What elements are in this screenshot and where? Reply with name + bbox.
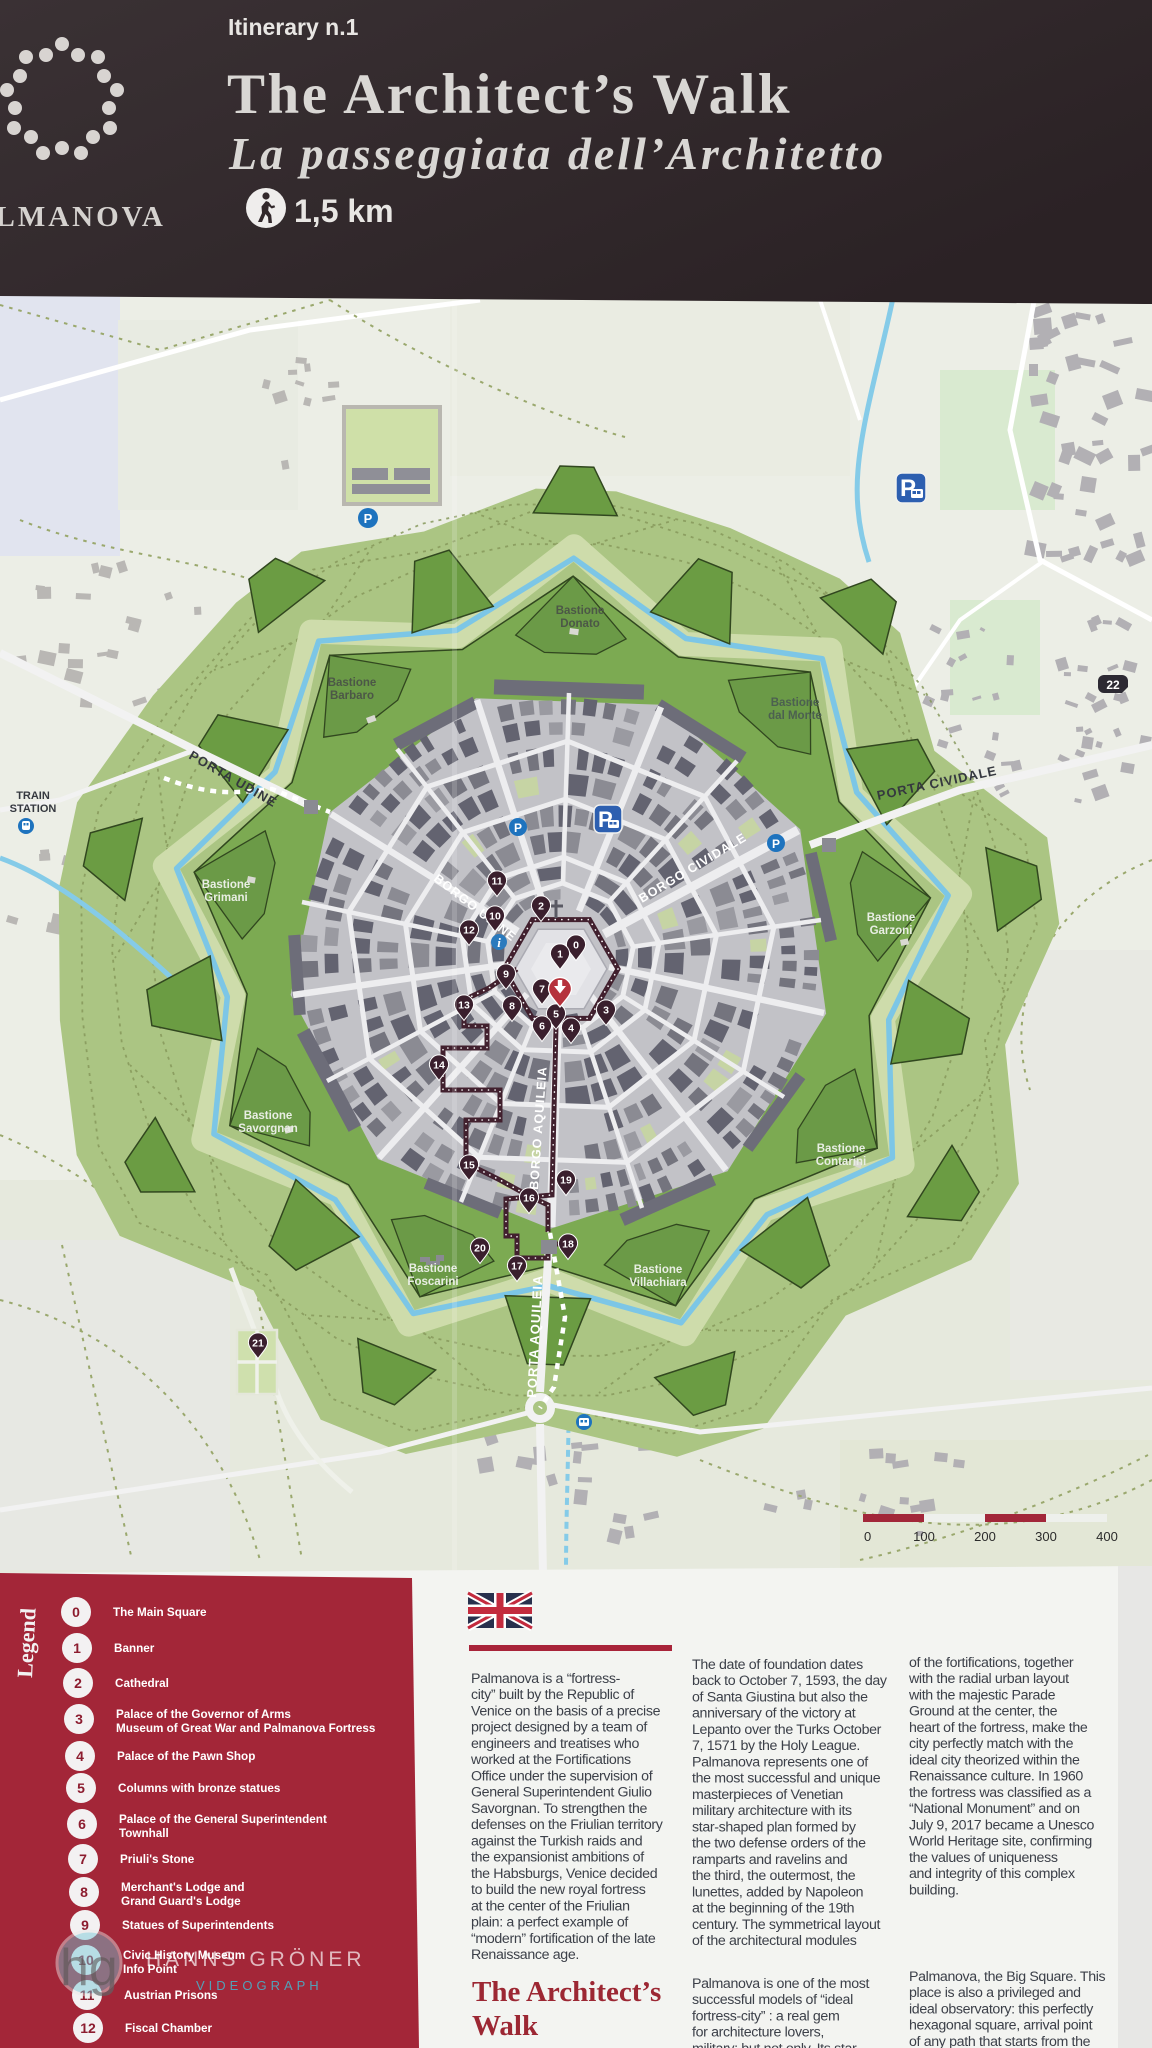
svg-text:4: 4: [76, 1748, 84, 1764]
svg-text:0: 0: [573, 940, 579, 952]
svg-text:9: 9: [503, 969, 509, 981]
svg-text:The Main Square: The Main Square: [113, 1606, 207, 1619]
svg-text:Townhall: Townhall: [119, 1827, 169, 1840]
svg-text:200: 200: [974, 1529, 996, 1544]
svg-text:Foscarini: Foscarini: [407, 1276, 458, 1288]
svg-text:successful models of “ideal: successful models of “ideal: [692, 1992, 853, 2008]
svg-text:P: P: [364, 511, 373, 526]
svg-text:Bastione: Bastione: [771, 697, 820, 709]
svg-text:“National Monument” and on: “National Monument” and on: [909, 1801, 1080, 1817]
svg-text:July 9, 2017 became a Unesco: July 9, 2017 became a Unesco: [909, 1817, 1094, 1833]
svg-text:lunettes, added by Napoleon: lunettes, added by Napoleon: [692, 1884, 863, 1900]
svg-text:16: 16: [523, 1193, 535, 1205]
svg-text:Bastione: Bastione: [202, 879, 251, 891]
svg-text:Legend: Legend: [12, 1607, 41, 1678]
svg-text:18: 18: [562, 1239, 574, 1251]
svg-text:13: 13: [458, 1000, 470, 1012]
svg-text:The Architect’s Walk: The Architect’s Walk: [227, 63, 792, 126]
svg-text:14: 14: [433, 1060, 445, 1072]
svg-text:6: 6: [539, 1021, 545, 1033]
svg-text:Cathedral: Cathedral: [115, 1677, 169, 1690]
svg-text:Palmanova represents one of: Palmanova represents one of: [692, 1754, 868, 1770]
svg-text:Savorgnan: Savorgnan: [238, 1123, 297, 1135]
svg-text:Bastione: Bastione: [634, 1264, 683, 1276]
svg-text:ideal observatory: this perfec: ideal observatory: this perfectly: [909, 2002, 1094, 2018]
svg-text:11: 11: [491, 876, 502, 888]
svg-text:Garzoni: Garzoni: [870, 925, 913, 937]
svg-text:with the radial urban layout: with the radial urban layout: [908, 1671, 1069, 1687]
svg-text:Bastione: Bastione: [244, 1110, 293, 1122]
svg-text:Palmanova, the Big Square. Thi: Palmanova, the Big Square. This: [909, 1969, 1106, 1985]
svg-text:with the majestic Parade: with the majestic Parade: [908, 1688, 1056, 1704]
svg-text:7, 1571 by the Holy League.: 7, 1571 by the Holy League.: [692, 1738, 860, 1754]
svg-text:2: 2: [538, 901, 544, 913]
svg-text:the expansionist ambitions of: the expansionist ambitions of: [471, 1850, 644, 1866]
svg-text:the third, the outermost, the: the third, the outermost, the: [692, 1868, 856, 1884]
svg-text:World Heritage site, confirmin: World Heritage site, confirming: [909, 1834, 1092, 1850]
svg-text:Grand Guard's Lodge: Grand Guard's Lodge: [121, 1895, 241, 1908]
svg-text:2: 2: [74, 1675, 82, 1691]
svg-text:anniversary of the victory at: anniversary of the victory at: [692, 1706, 856, 1722]
svg-text:masterpieces of Venetian: masterpieces of Venetian: [692, 1787, 843, 1803]
svg-text:Priuli's Stone: Priuli's Stone: [120, 1853, 195, 1866]
svg-text:of Santa Giustina but also the: of Santa Giustina but also the: [692, 1690, 868, 1706]
svg-text:Bastione: Bastione: [556, 605, 605, 617]
svg-text:defenses on the Friulian terri: defenses on the Friulian territory: [471, 1817, 664, 1833]
svg-text:Donato: Donato: [560, 618, 600, 630]
svg-text:the fortress was classified as: the fortress was classified as a: [909, 1785, 1091, 1801]
svg-text:7: 7: [79, 1851, 87, 1867]
svg-text:PALMANOVA: PALMANOVA: [0, 201, 166, 233]
svg-text:hexagonal square, arrival poin: hexagonal square, arrival point: [909, 2018, 1093, 2034]
svg-text:against the Turkish raids and: against the Turkish raids and: [471, 1833, 642, 1849]
svg-text:Bastione: Bastione: [817, 1143, 866, 1155]
svg-text:Palace of the Governor of Arms: Palace of the Governor of Arms: [116, 1708, 291, 1721]
svg-text:Itinerary n.1: Itinerary n.1: [228, 14, 359, 40]
svg-text:0: 0: [72, 1604, 80, 1620]
svg-text:city” built by the Republic of: city” built by the Republic of: [471, 1687, 634, 1703]
svg-text:STATION: STATION: [10, 803, 57, 815]
svg-text:VIDEOGRAPH: VIDEOGRAPH: [196, 1978, 323, 1993]
svg-text:15: 15: [463, 1160, 475, 1172]
svg-text:Bastione: Bastione: [328, 677, 377, 689]
svg-text:hg: hg: [60, 1939, 118, 1997]
svg-text:Ground at the center, the: Ground at the center, the: [909, 1704, 1058, 1720]
svg-text:heart of the fortress, make th: heart of the fortress, make the: [909, 1720, 1088, 1736]
svg-text:building.: building.: [909, 1882, 959, 1898]
svg-text:the two defense orders of the: the two defense orders of the: [692, 1836, 866, 1852]
svg-text:8: 8: [80, 1884, 88, 1900]
svg-text:i: i: [497, 935, 501, 950]
svg-text:military; but not only. Its st: military; but not only. Its star-: [692, 2041, 861, 2048]
svg-text:Renaissance age.: Renaissance age.: [471, 1947, 579, 1963]
svg-text:Office under the supervision o: Office under the supervision of: [471, 1768, 653, 1784]
svg-text:300: 300: [1035, 1529, 1057, 1544]
svg-text:The Architect’s: The Architect’s: [472, 1976, 661, 2008]
svg-text:city perfectly match with the: city perfectly match with the: [909, 1736, 1074, 1752]
svg-text:HANNS GRÖNER: HANNS GRÖNER: [146, 1948, 366, 1971]
svg-text:General Superintendent Giulio: General Superintendent Giulio: [471, 1785, 652, 1801]
svg-text:Fiscal Chamber: Fiscal Chamber: [125, 2022, 212, 2035]
svg-text:12: 12: [463, 925, 475, 937]
svg-text:the values of uniqueness: the values of uniqueness: [909, 1850, 1058, 1866]
svg-text:Bastione: Bastione: [409, 1263, 458, 1275]
svg-text:400: 400: [1096, 1529, 1118, 1544]
svg-text:12: 12: [80, 2020, 96, 2036]
svg-text:P: P: [772, 837, 780, 851]
svg-text:Villachiara: Villachiara: [629, 1277, 687, 1289]
svg-text:Savorgnan. To strengthen the: Savorgnan. To strengthen the: [471, 1801, 648, 1817]
svg-text:engineers and treatises who: engineers and treatises who: [471, 1736, 639, 1752]
svg-text:TRAIN: TRAIN: [16, 790, 50, 802]
svg-text:3: 3: [75, 1711, 83, 1727]
svg-text:to build the new royal fortres: to build the new royal fortress: [471, 1882, 646, 1898]
svg-text:The date of foundation dates: The date of foundation dates: [692, 1657, 863, 1673]
svg-text:and integrity of this complex: and integrity of this complex: [909, 1866, 1075, 1882]
svg-text:Grimani: Grimani: [204, 892, 247, 904]
svg-text:Merchant's Lodge and: Merchant's Lodge and: [121, 1881, 245, 1894]
svg-text:the Habsburgs, Venice decided: the Habsburgs, Venice decided: [471, 1866, 657, 1882]
svg-text:Palace of the Pawn Shop: Palace of the Pawn Shop: [117, 1750, 255, 1763]
svg-text:21: 21: [252, 1338, 264, 1350]
svg-text:Walk: Walk: [472, 2010, 539, 2042]
svg-text:0: 0: [864, 1529, 871, 1544]
svg-text:ramparts and ravelins and: ramparts and ravelins and: [692, 1852, 847, 1868]
svg-text:1: 1: [73, 1640, 81, 1656]
svg-text:of any path that starts from t: of any path that starts from the: [909, 2034, 1091, 2048]
svg-text:P: P: [598, 807, 613, 832]
svg-text:19: 19: [560, 1175, 572, 1187]
svg-text:dal Monte: dal Monte: [768, 710, 822, 722]
svg-text:8: 8: [509, 1001, 515, 1013]
svg-text:1: 1: [557, 949, 563, 961]
svg-text:1,5 km: 1,5 km: [294, 193, 394, 229]
svg-text:ideal city theorized within th: ideal city theorized within the: [909, 1752, 1080, 1768]
svg-text:Museum of Great War and Palman: Museum of Great War and Palmanova Fortre…: [116, 1722, 376, 1735]
svg-text:17: 17: [511, 1261, 523, 1273]
svg-text:at the center of the Friulian: at the center of the Friulian: [471, 1898, 630, 1914]
svg-text:Columns with bronze statues: Columns with bronze statues: [118, 1782, 281, 1795]
svg-text:worked at the Fortifications: worked at the Fortifications: [470, 1752, 631, 1768]
svg-text:“modern” fortification of the: “modern” fortification of the late: [471, 1931, 656, 1947]
svg-text:10: 10: [489, 911, 501, 923]
svg-text:Statues of Superintendents: Statues of Superintendents: [122, 1919, 274, 1932]
svg-text:3: 3: [603, 1005, 609, 1017]
svg-text:Palmanova is one of the most: Palmanova is one of the most: [692, 1976, 870, 1992]
svg-text:for architecture lovers,: for architecture lovers,: [692, 2025, 824, 2041]
svg-text:Barbaro: Barbaro: [330, 690, 374, 702]
svg-text:of the architectural modules: of the architectural modules: [692, 1933, 857, 1949]
svg-text:P: P: [514, 821, 522, 835]
svg-text:star-shaped plan formed by: star-shaped plan formed by: [692, 1819, 857, 1835]
svg-text:La passeggiata dell’Architetto: La passeggiata dell’Architetto: [228, 128, 886, 179]
svg-text:Renaissance culture. In 1960: Renaissance culture. In 1960: [909, 1769, 1083, 1785]
svg-text:Banner: Banner: [114, 1642, 155, 1655]
svg-text:at the beginning of the 19th: at the beginning of the 19th: [692, 1901, 854, 1917]
svg-text:Venice on the basis of a preci: Venice on the basis of a precise: [471, 1704, 661, 1720]
svg-text:project designed by a team of: project designed by a team of: [471, 1720, 647, 1736]
svg-text:Contarini: Contarini: [816, 1156, 866, 1168]
svg-text:of the fortifications, togethe: of the fortifications, together: [909, 1655, 1074, 1671]
svg-text:6: 6: [78, 1816, 86, 1832]
svg-text:Bastione: Bastione: [867, 912, 916, 924]
svg-text:5: 5: [553, 1009, 559, 1021]
svg-text:Palmanova is a “fortress-: Palmanova is a “fortress-: [471, 1671, 621, 1687]
svg-text:the most successful and unique: the most successful and unique: [692, 1771, 881, 1787]
svg-text:century. The symmetrical layou: century. The symmetrical layout: [692, 1917, 881, 1933]
svg-text:fortress-city” : a real gem: fortress-city” : a real gem: [692, 2009, 839, 2025]
svg-text:Palace of the General Superint: Palace of the General Superintendent: [119, 1813, 327, 1826]
svg-text:22: 22: [1106, 678, 1120, 692]
svg-text:military architecture with its: military architecture with its: [692, 1803, 852, 1819]
svg-text:4: 4: [568, 1023, 574, 1035]
svg-text:7: 7: [539, 984, 545, 996]
svg-text:5: 5: [77, 1780, 85, 1796]
svg-text:Lepanto over the Turks October: Lepanto over the Turks October: [692, 1722, 882, 1738]
svg-text:back to October 7, 1593, the d: back to October 7, 1593, the day: [692, 1673, 888, 1689]
svg-text:plain: a perfect example of: plain: a perfect example of: [471, 1915, 628, 1931]
svg-text:100: 100: [913, 1529, 935, 1544]
svg-text:20: 20: [474, 1243, 486, 1255]
svg-text:place is also a privileged and: place is also a privileged and: [909, 1985, 1081, 2001]
